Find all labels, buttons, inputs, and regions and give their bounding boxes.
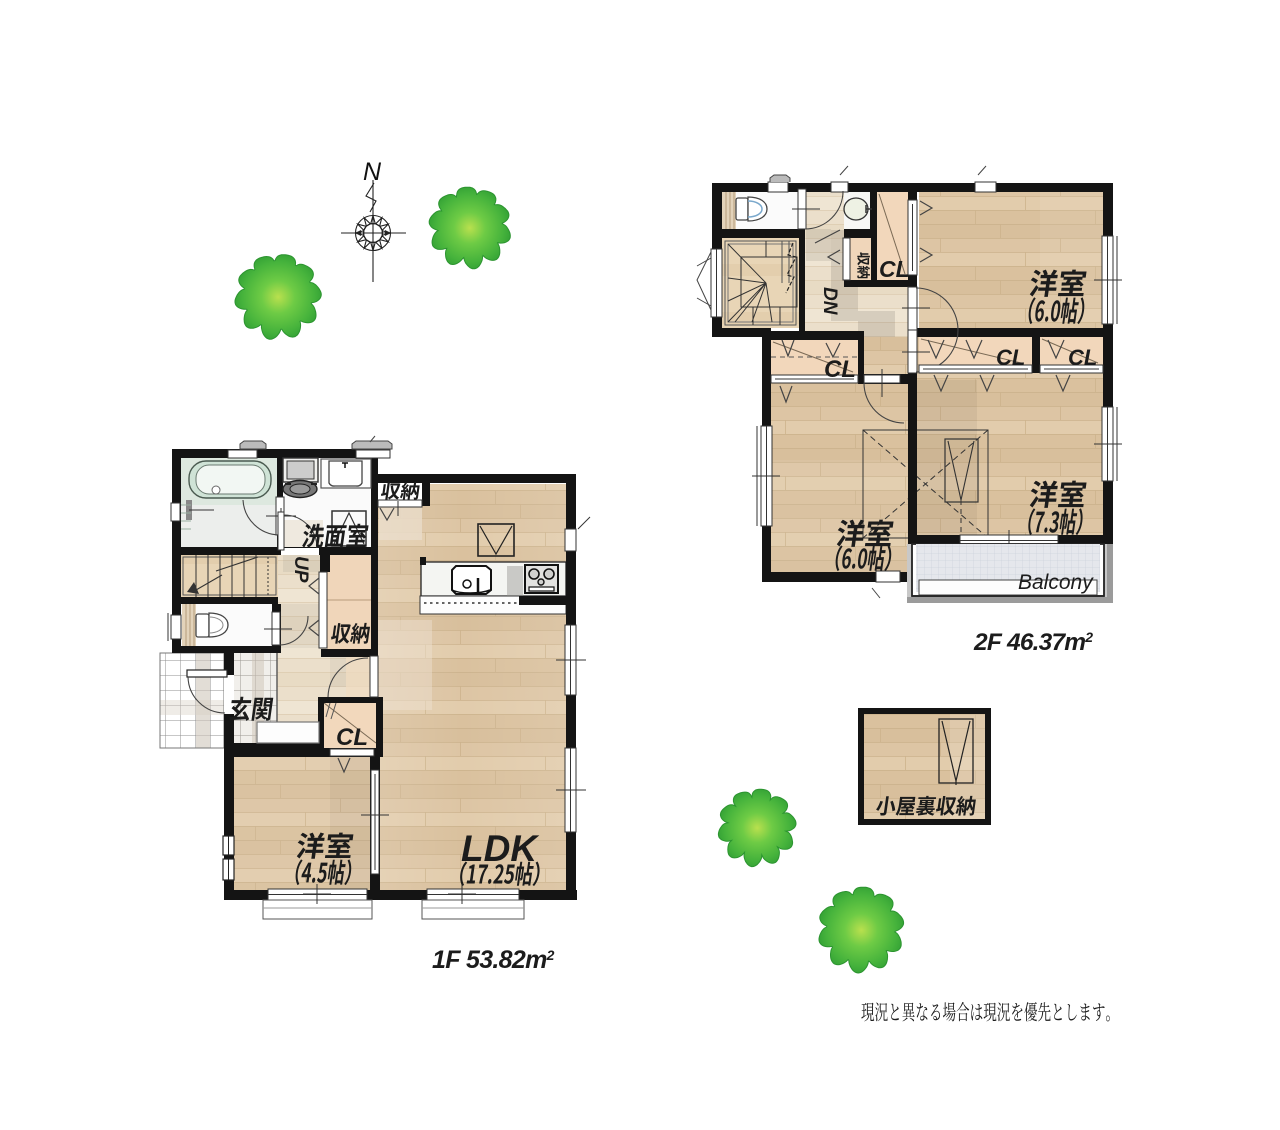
svg-text:CL: CL bbox=[996, 345, 1025, 370]
svg-text:UP: UP bbox=[290, 556, 311, 583]
svg-text:CL: CL bbox=[879, 256, 910, 282]
svg-text:2F 46.37m2: 2F 46.37m2 bbox=[973, 629, 1093, 656]
svg-text:CL: CL bbox=[824, 356, 856, 383]
svg-text:Balcony: Balcony bbox=[1018, 571, 1094, 594]
svg-text:CL: CL bbox=[1068, 345, 1097, 370]
svg-text:CL: CL bbox=[336, 724, 368, 751]
svg-text:1F 53.82m2: 1F 53.82m2 bbox=[432, 946, 555, 974]
svg-text:LDK: LDK bbox=[461, 828, 539, 869]
svg-text:DN: DN bbox=[819, 287, 840, 316]
svg-text:N: N bbox=[363, 158, 382, 186]
